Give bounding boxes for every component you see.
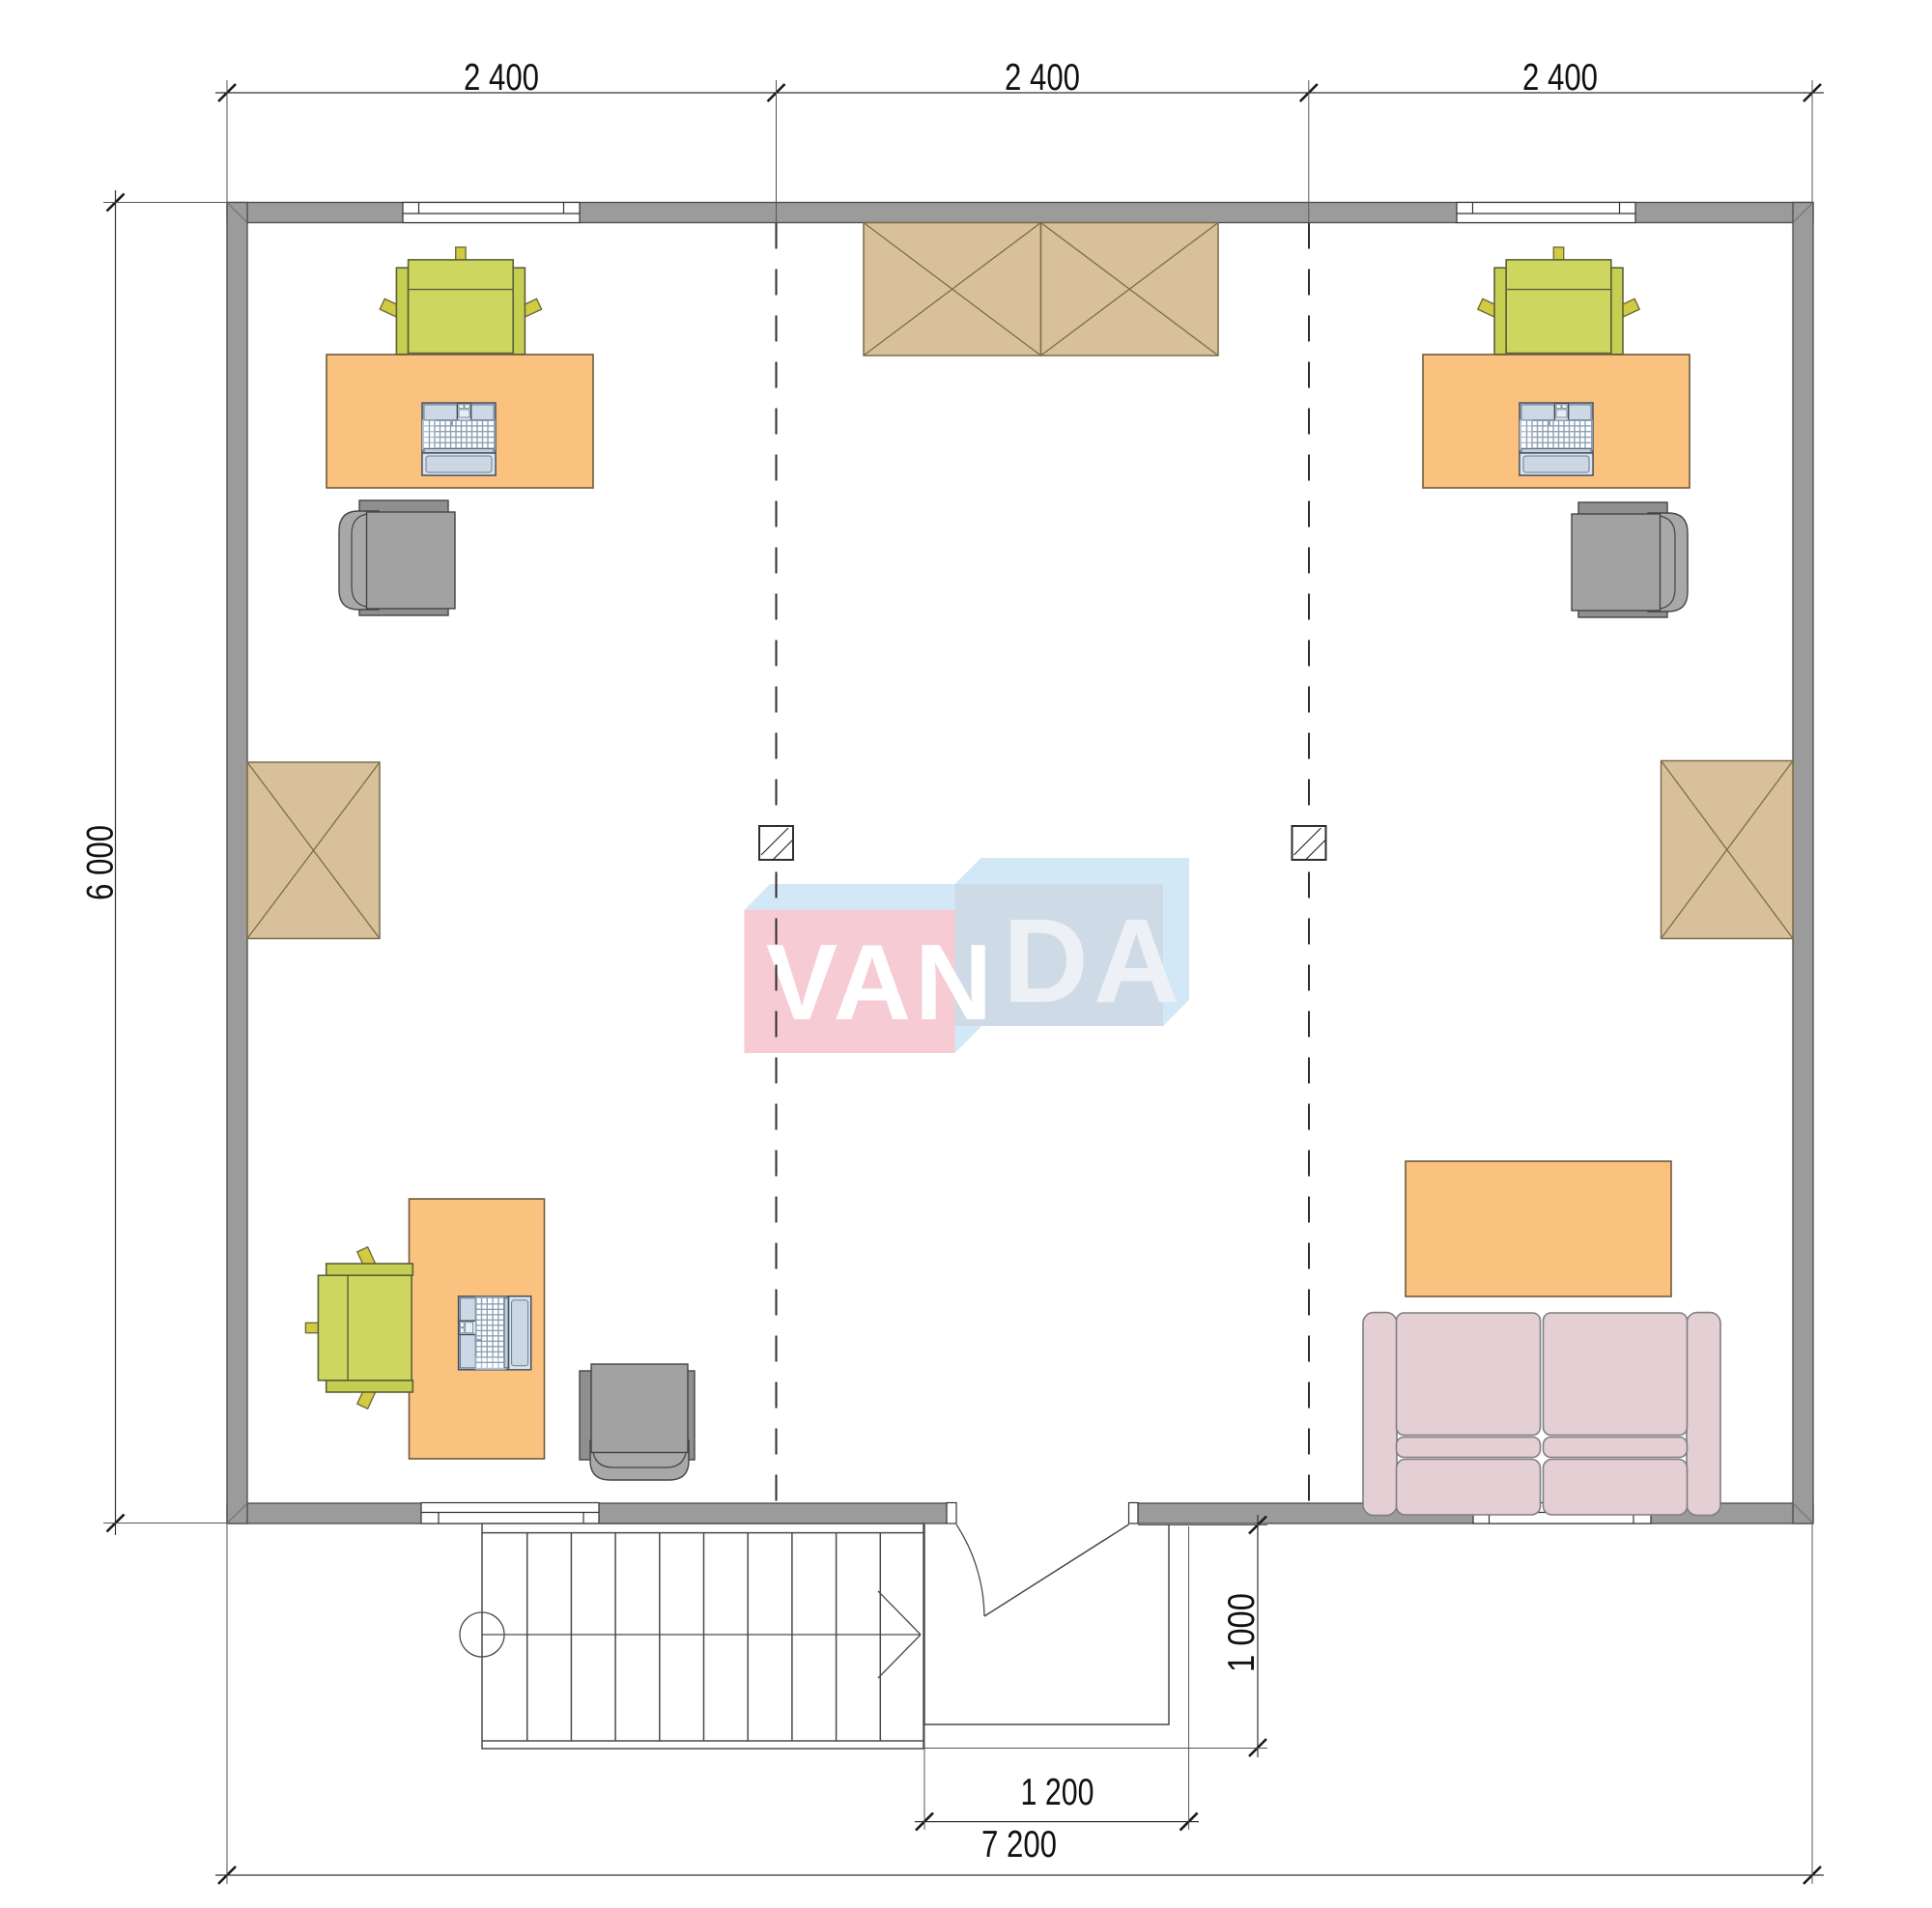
svg-text:2 400: 2 400: [464, 57, 539, 99]
svg-text:DA: DA: [1003, 896, 1184, 1028]
svg-text:1 000: 1 000: [1221, 1593, 1263, 1672]
svg-text:VAN: VAN: [766, 923, 996, 1042]
svg-text:6 000: 6 000: [80, 825, 122, 900]
svg-text:2 400: 2 400: [1522, 57, 1598, 99]
svg-text:7 200: 7 200: [981, 1824, 1057, 1865]
svg-text:1 200: 1 200: [1021, 1772, 1094, 1813]
svg-text:2 400: 2 400: [1005, 57, 1080, 99]
